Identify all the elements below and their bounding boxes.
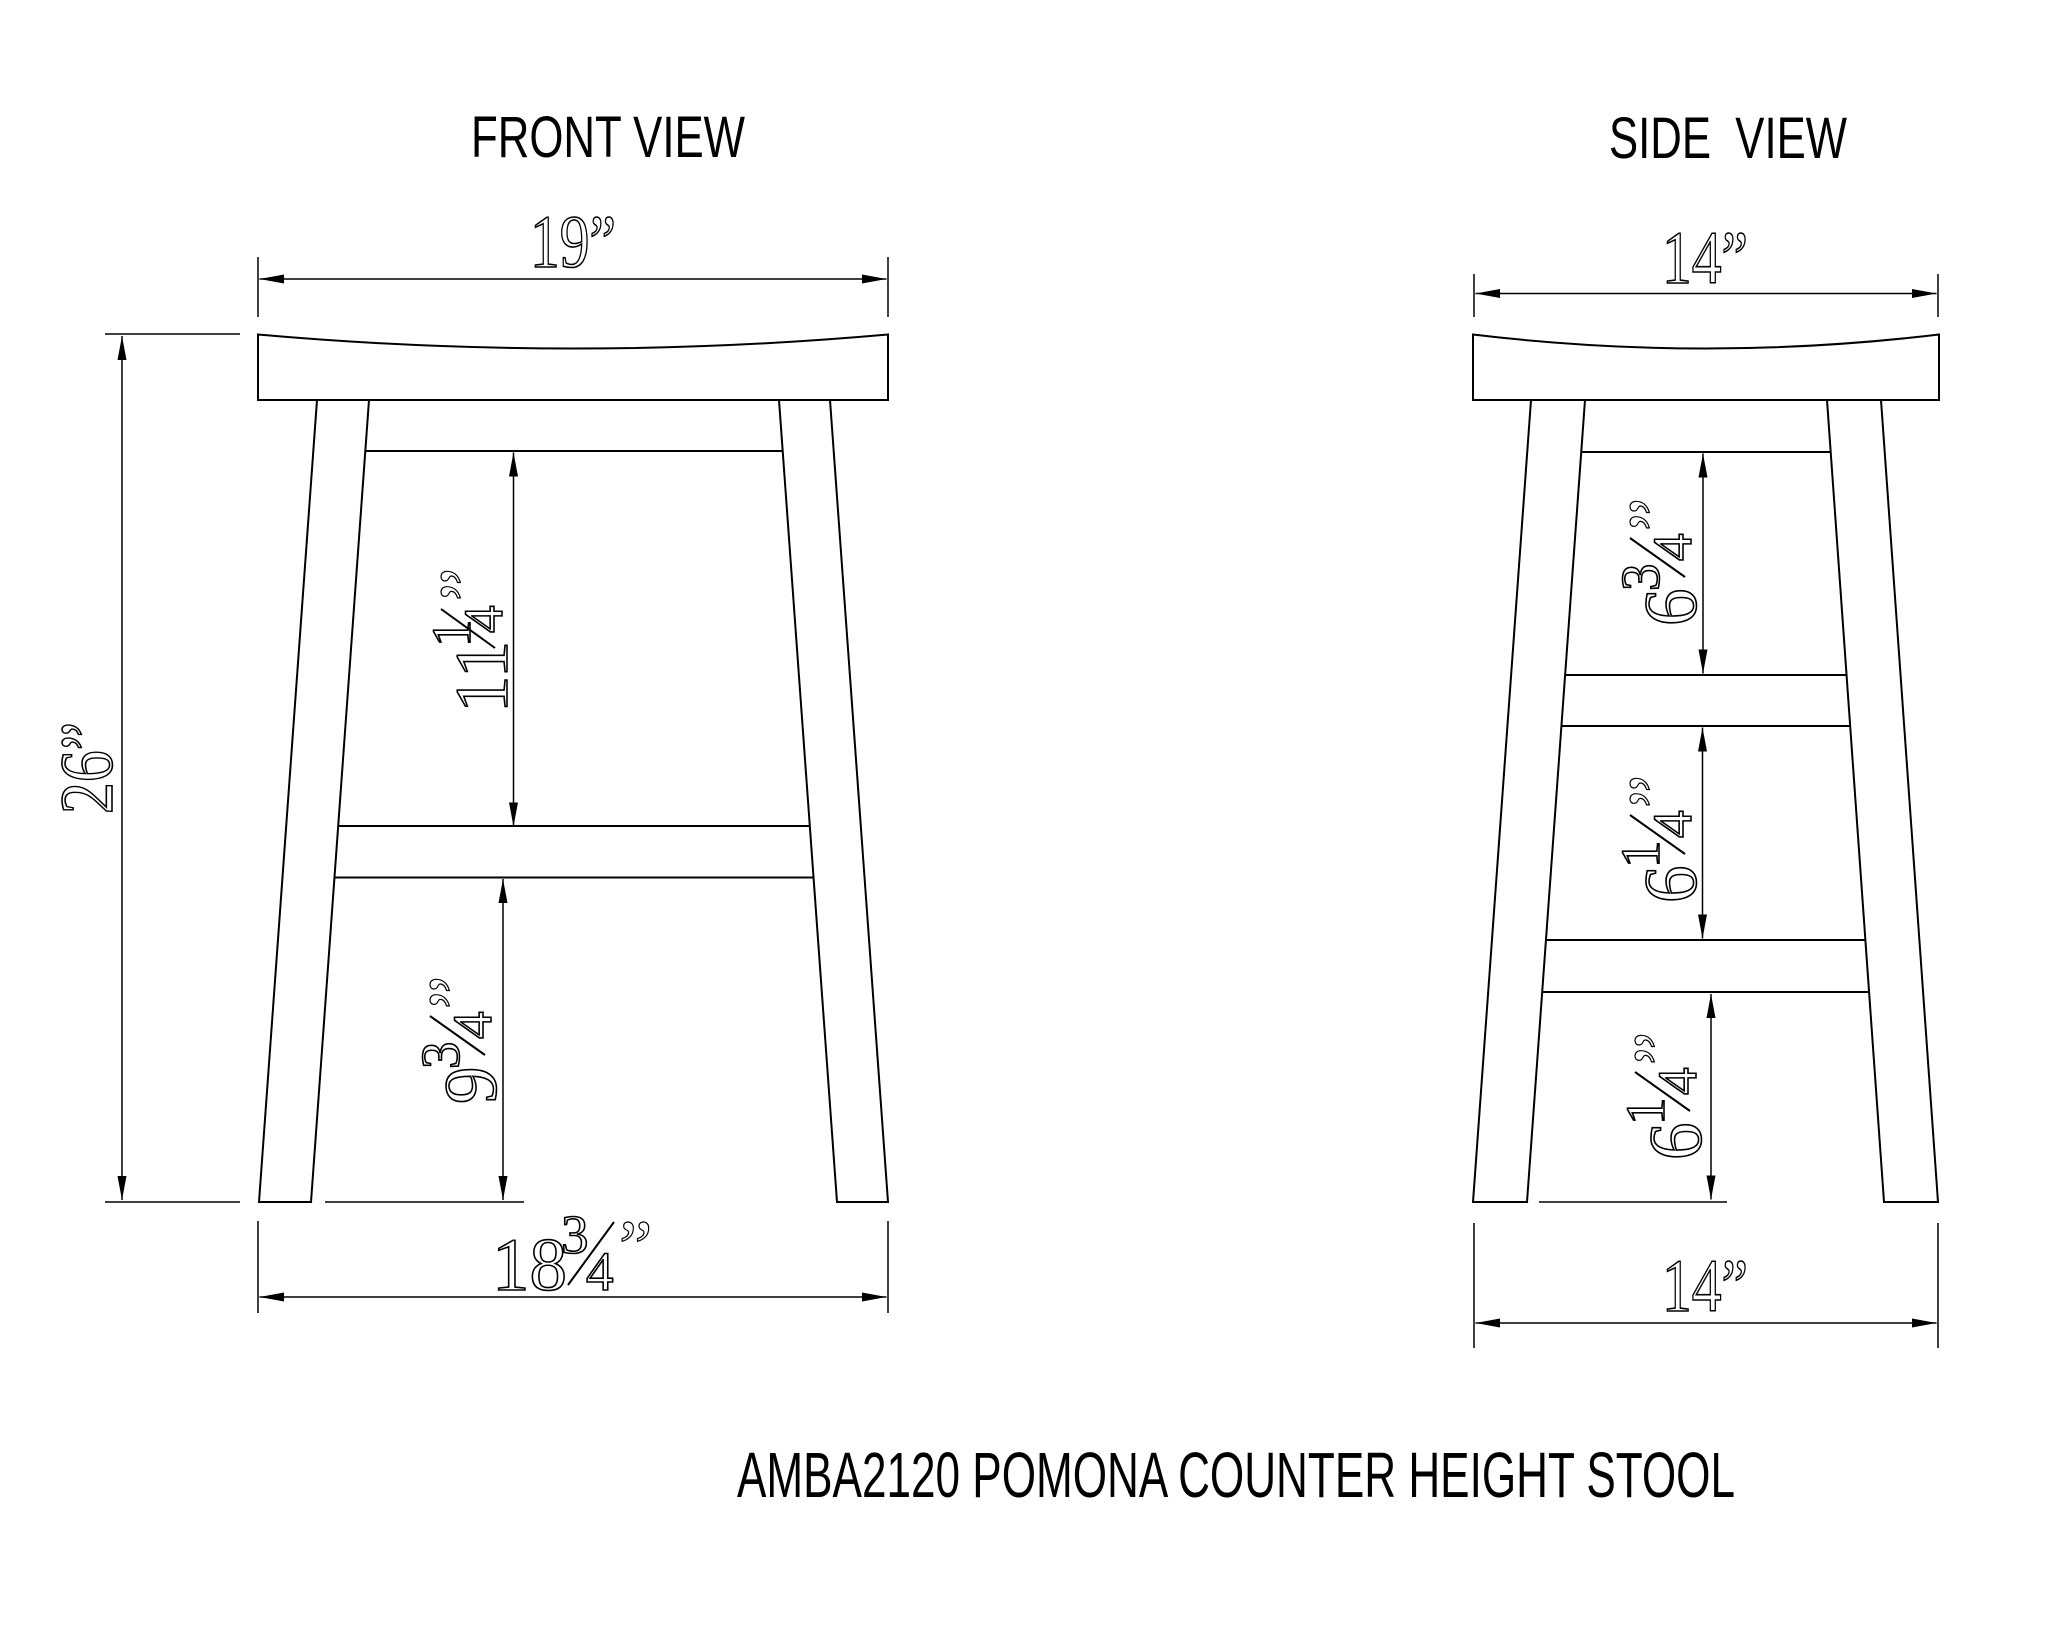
svg-text:6: 6: [1630, 866, 1713, 904]
svg-text:18: 18: [492, 1224, 567, 1307]
svg-text:3: 3: [1610, 564, 1671, 592]
svg-text:”: ”: [1614, 498, 1697, 531]
svg-text:3: 3: [561, 1204, 589, 1265]
svg-text:”: ”: [425, 568, 508, 601]
svg-text:6: 6: [1635, 1123, 1718, 1161]
svg-text:4: 4: [1642, 811, 1703, 839]
svg-text:19”: 19”: [530, 201, 616, 284]
svg-text:”: ”: [1614, 775, 1697, 808]
svg-text:9: 9: [430, 1067, 513, 1105]
svg-text:1: 1: [1610, 841, 1671, 869]
svg-text:4: 4: [453, 606, 514, 634]
svg-text:FRONT VIEW: FRONT VIEW: [471, 105, 745, 170]
svg-text:”: ”: [619, 1206, 652, 1289]
svg-text:1: 1: [1615, 1098, 1676, 1126]
svg-text:6: 6: [1630, 589, 1713, 627]
svg-text:4: 4: [1642, 534, 1703, 562]
svg-text:4: 4: [1647, 1068, 1708, 1096]
svg-text:14”: 14”: [1662, 217, 1748, 300]
svg-text:4: 4: [586, 1241, 614, 1302]
svg-text:26”: 26”: [46, 722, 129, 814]
svg-text:”: ”: [1619, 1032, 1702, 1065]
svg-text:4: 4: [442, 1012, 503, 1040]
svg-text:AMBA2120 POMONA COUNTER HEIGHT: AMBA2120 POMONA COUNTER HEIGHT STOOL: [737, 1439, 1735, 1511]
svg-text:11: 11: [441, 641, 524, 713]
svg-text:SIDE VIEW: SIDE VIEW: [1609, 106, 1847, 171]
svg-text:3: 3: [410, 1042, 471, 1070]
svg-text:”: ”: [414, 976, 497, 1009]
svg-text:14”: 14”: [1662, 1245, 1748, 1328]
